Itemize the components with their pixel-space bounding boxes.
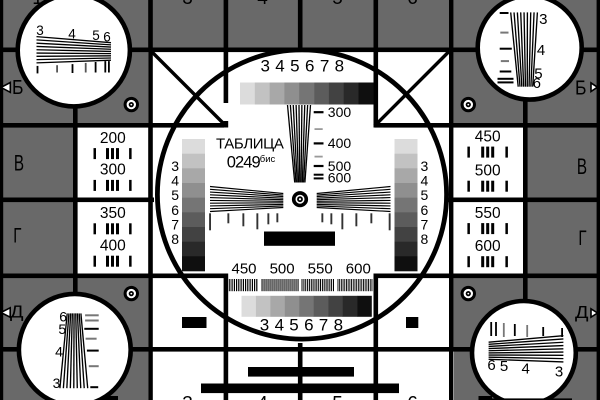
svg-text:0249: 0249 — [227, 153, 261, 171]
svg-text:6: 6 — [103, 30, 111, 45]
svg-text:300: 300 — [328, 104, 352, 120]
svg-text:В: В — [577, 154, 587, 179]
svg-text:300: 300 — [100, 162, 126, 179]
svg-text:4: 4 — [68, 26, 76, 41]
svg-text:6: 6 — [171, 202, 179, 218]
svg-text:3: 3 — [53, 375, 61, 391]
svg-text:500: 500 — [270, 261, 295, 278]
svg-text:5: 5 — [92, 28, 100, 43]
svg-text:6: 6 — [407, 394, 418, 400]
svg-text:7: 7 — [319, 316, 328, 335]
svg-text:4: 4 — [421, 173, 429, 189]
svg-text:3: 3 — [555, 363, 563, 380]
svg-text:400: 400 — [100, 237, 126, 254]
svg-text:1: 1 — [32, 0, 43, 9]
svg-text:4: 4 — [537, 42, 545, 59]
svg-text:3: 3 — [539, 11, 547, 28]
svg-text:550: 550 — [308, 261, 333, 278]
svg-text:5: 5 — [500, 358, 508, 375]
svg-text:7: 7 — [320, 57, 329, 76]
svg-text:200: 200 — [100, 130, 126, 147]
svg-text:8: 8 — [334, 316, 343, 335]
svg-text:4: 4 — [275, 316, 284, 335]
svg-text:Г: Г — [13, 224, 21, 247]
svg-text:8: 8 — [421, 231, 429, 247]
svg-text:600: 600 — [475, 238, 501, 255]
svg-text:400: 400 — [328, 135, 352, 151]
svg-text:Д: Д — [10, 301, 24, 321]
svg-text:3: 3 — [260, 57, 269, 76]
svg-text:500: 500 — [475, 162, 501, 179]
svg-text:5: 5 — [171, 187, 179, 203]
svg-text:5: 5 — [290, 57, 299, 76]
svg-text:5: 5 — [289, 316, 298, 335]
svg-text:5: 5 — [332, 394, 343, 400]
svg-text:8: 8 — [171, 231, 179, 247]
svg-text:3: 3 — [421, 158, 429, 174]
svg-text:3: 3 — [182, 0, 193, 9]
svg-text:3: 3 — [182, 394, 193, 400]
svg-text:5: 5 — [332, 0, 343, 9]
svg-text:5: 5 — [58, 321, 66, 337]
svg-text:Б: Б — [575, 78, 587, 100]
svg-text:4: 4 — [522, 361, 530, 378]
svg-text:600: 600 — [328, 169, 352, 185]
svg-text:В: В — [14, 151, 24, 176]
svg-text:Д: Д — [575, 302, 589, 322]
svg-text:3: 3 — [171, 158, 179, 174]
svg-text:Б: Б — [12, 77, 24, 99]
svg-text:6: 6 — [487, 357, 495, 374]
svg-text:350: 350 — [100, 205, 126, 222]
svg-text:5: 5 — [421, 187, 429, 203]
svg-text:бис: бис — [260, 154, 276, 165]
svg-text:3: 3 — [36, 23, 44, 38]
svg-text:6: 6 — [304, 316, 313, 335]
svg-text:3: 3 — [260, 316, 269, 335]
svg-text:Г: Г — [578, 227, 586, 250]
svg-text:7: 7 — [171, 216, 179, 232]
svg-text:550: 550 — [475, 205, 501, 222]
svg-text:4: 4 — [257, 394, 268, 400]
svg-text:4: 4 — [257, 0, 268, 9]
svg-text:600: 600 — [346, 261, 371, 278]
svg-text:6: 6 — [407, 0, 418, 9]
svg-text:4: 4 — [55, 343, 63, 359]
svg-text:6: 6 — [533, 75, 541, 92]
svg-text:8: 8 — [335, 57, 344, 76]
svg-text:450: 450 — [231, 261, 256, 278]
svg-text:4: 4 — [171, 173, 179, 189]
svg-text:4: 4 — [275, 57, 284, 76]
svg-text:6: 6 — [421, 202, 429, 218]
svg-text:6: 6 — [305, 57, 314, 76]
svg-text:7: 7 — [421, 216, 429, 232]
svg-text:450: 450 — [475, 129, 501, 146]
svg-text:ТАБЛИЦА: ТАБЛИЦА — [216, 135, 284, 152]
